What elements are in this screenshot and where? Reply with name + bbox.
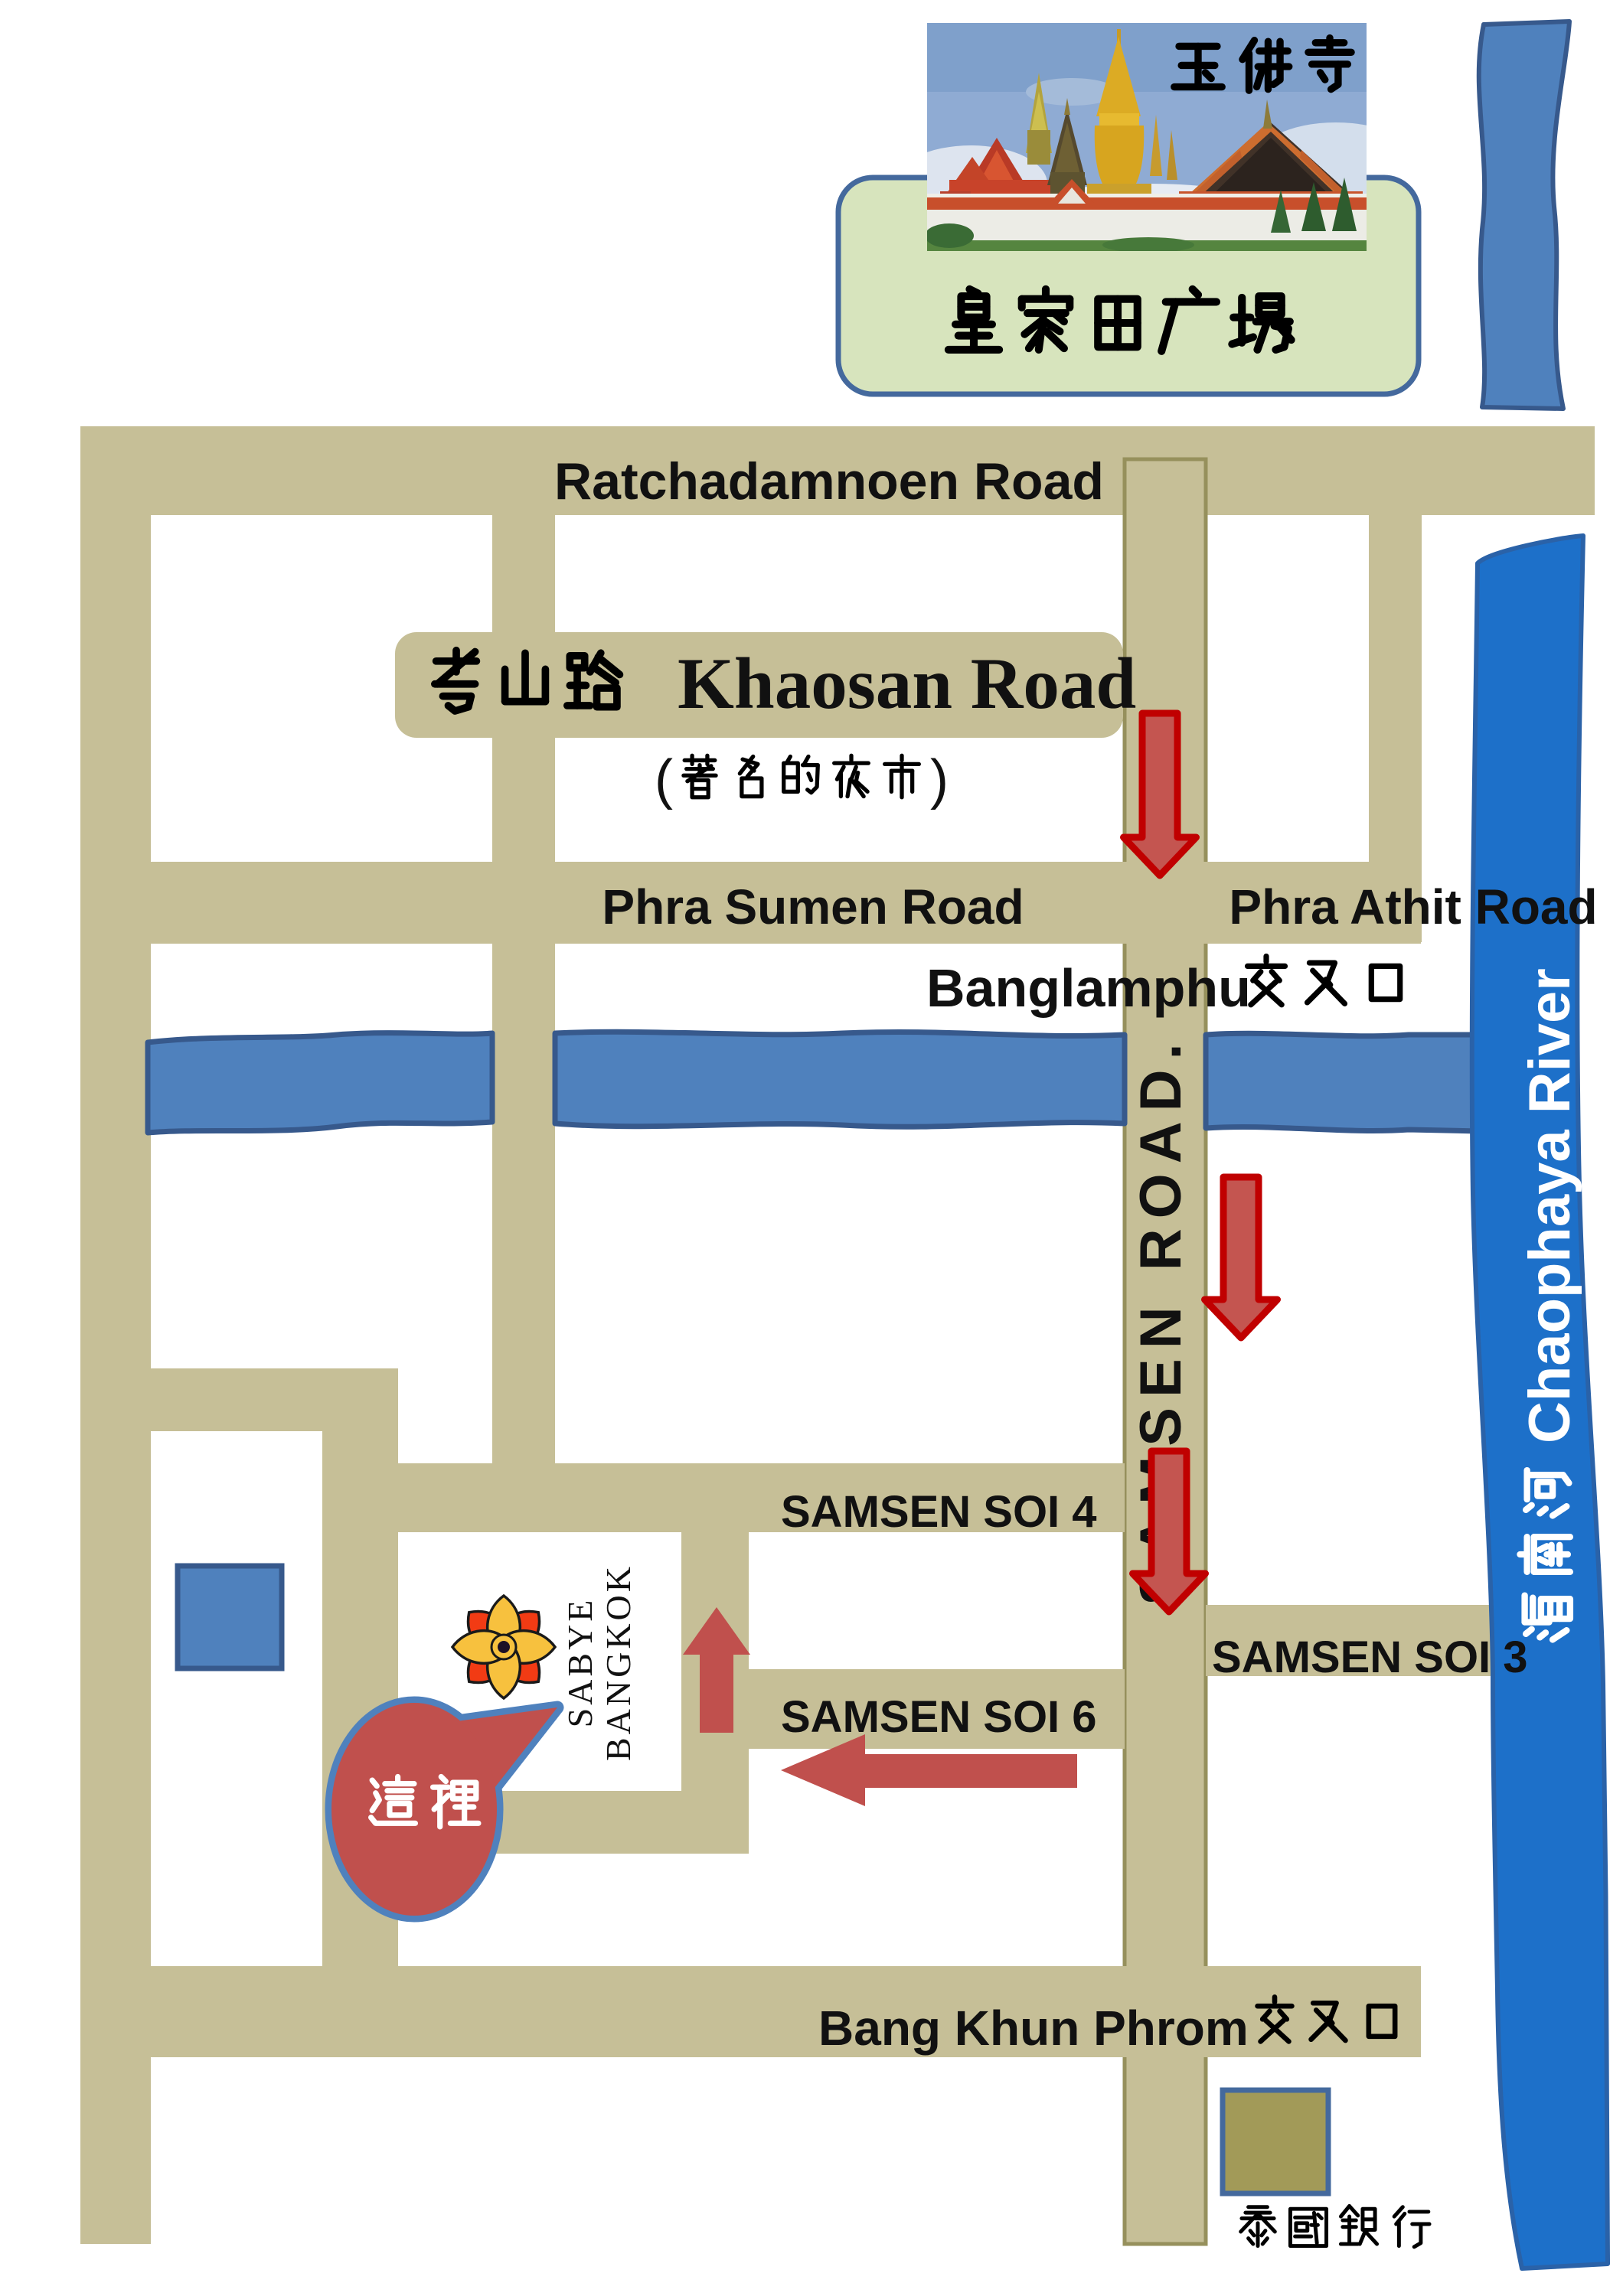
- svg-text:Chaophaya River: Chaophaya River: [1517, 968, 1582, 1443]
- svg-text:Phra Athit Road: Phra Athit Road: [1229, 879, 1597, 934]
- svg-text:(: (: [655, 749, 673, 810]
- svg-text:BANGKOK: BANGKOK: [599, 1564, 638, 1761]
- svg-text:SAMSEN SOI 4: SAMSEN SOI 4: [781, 1487, 1097, 1537]
- svg-text:): ): [930, 749, 949, 810]
- svg-text:Khaosan Road: Khaosan Road: [678, 643, 1136, 724]
- svg-text:SAMSEN SOI 3: SAMSEN SOI 3: [1212, 1632, 1528, 1682]
- svg-text:Banglamphu: Banglamphu: [926, 958, 1251, 1018]
- svg-text:Bang Khun Phrom: Bang Khun Phrom: [818, 2001, 1249, 2056]
- svg-text:Ratchadamnoen Road: Ratchadamnoen Road: [554, 452, 1104, 510]
- svg-text:Phra Sumen Road: Phra Sumen Road: [602, 879, 1024, 934]
- svg-text:SABYE: SABYE: [560, 1597, 599, 1728]
- svg-text:SAMSEN SOI 6: SAMSEN SOI 6: [781, 1692, 1097, 1742]
